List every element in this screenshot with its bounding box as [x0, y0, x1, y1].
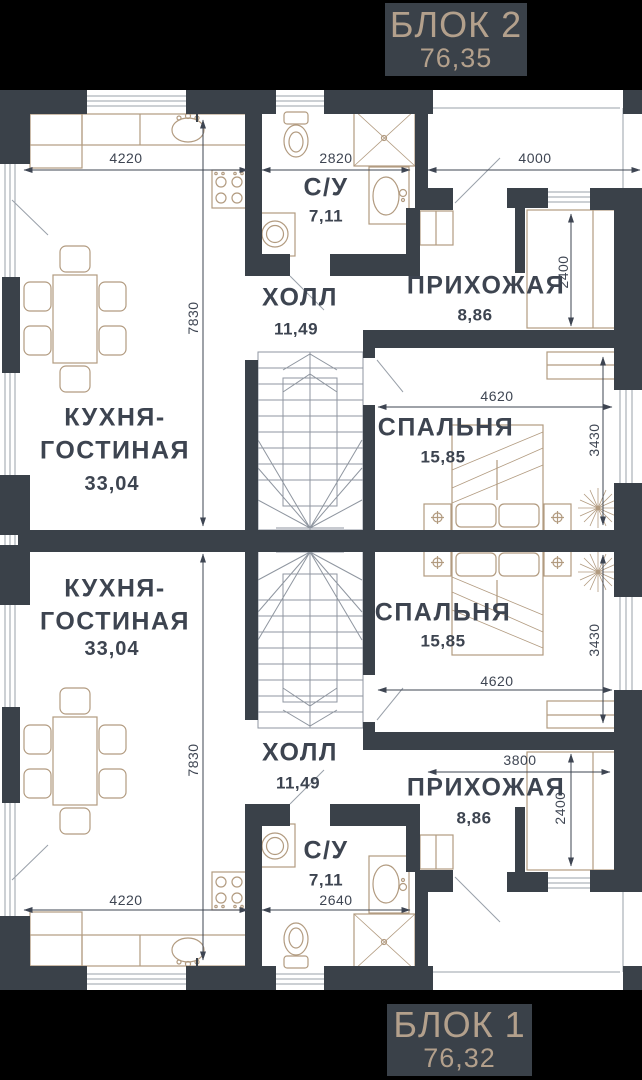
dim-bedroom-width-block1: 4620 [480, 674, 513, 688]
floorplan-canvas: КУХНЯ- ГОСТИНАЯ 33,04 С/У 7,11 ХОЛЛ 11,4… [0, 0, 642, 1080]
room-label-kitchen-living-block2: КУХНЯ- [64, 406, 165, 431]
room-area-bedroom-block2: 15,85 [420, 449, 465, 466]
room-label-entry-block2: ПРИХОЖАЯ [407, 274, 565, 299]
party-wall [18, 530, 642, 552]
room-label-kitchen-living-block1: КУХНЯ- [64, 577, 165, 602]
room-area-bathroom-block1: 7,11 [309, 872, 343, 889]
room-label-bedroom-block1: СПАЛЬНЯ [375, 601, 511, 626]
room-area-hall-block2: 11,49 [274, 321, 318, 338]
dim-kitchen-width-block1: 4220 [109, 893, 142, 907]
dim-entry-depth-block2: 2400 [556, 255, 570, 288]
dim-entry-depth-block1: 2400 [553, 791, 567, 824]
room-area-entry-block2: 8,86 [457, 307, 492, 324]
room-label-bedroom-block2: СПАЛЬНЯ [378, 416, 514, 441]
room-label-kitchen-living-block2: ГОСТИНАЯ [40, 439, 190, 464]
room-area-kitchen-living-block1: 33,04 [84, 639, 139, 659]
block2-badge-area: 76,35 [420, 44, 493, 74]
dim-bedroom-depth-block2: 3430 [587, 423, 601, 456]
dim-entry-width-block2: 4000 [518, 151, 551, 165]
dim-entry-width-block1: 3800 [503, 753, 536, 767]
room-label-kitchen-living-block1: ГОСТИНАЯ [40, 610, 190, 635]
block1-badge-title: БЛОК 1 [393, 1006, 525, 1044]
room-area-kitchen-living-block2: 33,04 [84, 474, 139, 494]
dim-kitchen-depth-block1: 7830 [186, 743, 200, 776]
room-label-bathroom-block1: С/У [303, 839, 348, 864]
room-area-bathroom-block2: 7,11 [309, 208, 343, 225]
dim-bedroom-width-block2: 4620 [480, 389, 513, 403]
room-label-hall-block2: ХОЛЛ [262, 286, 338, 311]
block1-badge: БЛОК 1 76,32 [387, 1004, 532, 1076]
block1-badge-area: 76,32 [423, 1044, 496, 1074]
dim-kitchen-depth-block2: 7830 [186, 301, 200, 334]
block2-badge-title: БЛОК 2 [390, 6, 522, 44]
room-area-hall-block1: 11,49 [276, 775, 320, 792]
dim-kitchen-width-block2: 4220 [109, 151, 142, 165]
dim-bathroom-width-block1: 2640 [319, 893, 352, 907]
room-area-bedroom-block1: 15,85 [420, 633, 465, 650]
room-area-entry-block1: 8,86 [456, 810, 491, 827]
room-label-bathroom-block2: С/У [303, 176, 348, 201]
block2-badge: БЛОК 2 76,35 [385, 3, 527, 76]
room-label-hall-block1: ХОЛЛ [262, 741, 338, 766]
dim-bathroom-width-block2: 2820 [319, 151, 352, 165]
dim-bedroom-depth-block1: 3430 [587, 623, 601, 656]
room-label-entry-block1: ПРИХОЖАЯ [407, 776, 565, 801]
